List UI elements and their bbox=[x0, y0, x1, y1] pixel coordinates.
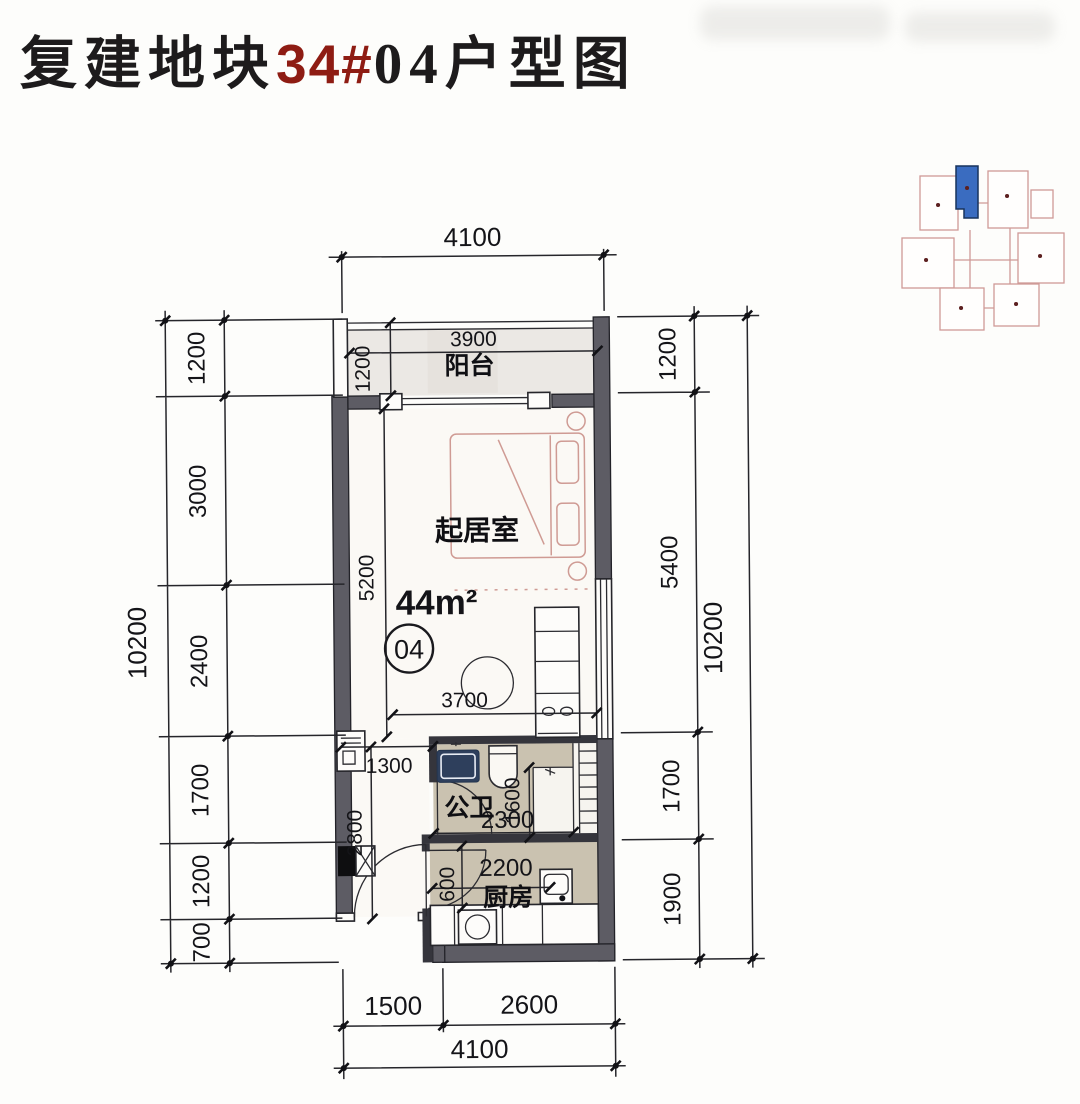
dim-bottom-1: 1500 bbox=[364, 990, 422, 1021]
dimension-left-lines bbox=[155, 309, 348, 973]
dim-left-1: 1200 bbox=[183, 332, 210, 386]
dim-left-6: 700 bbox=[188, 922, 215, 962]
dim-right-4: 1900 bbox=[659, 872, 686, 926]
unit-number-text: 04 bbox=[394, 634, 424, 664]
shower-area bbox=[533, 767, 574, 833]
balcony-wall-stub-left bbox=[348, 396, 382, 409]
living-window-right bbox=[595, 579, 612, 739]
dim-living-width: 3700 bbox=[441, 689, 488, 712]
dim-living-height: 5200 bbox=[355, 554, 378, 601]
dim-right-2: 5400 bbox=[656, 535, 683, 589]
right-wall-lower bbox=[597, 739, 615, 961]
balcony-wall-stub-right bbox=[552, 394, 594, 407]
dimension-right-lines bbox=[617, 306, 765, 969]
floor-plan-drawing: 4100 3900 1200 5200 3700 1300 2800 1600 … bbox=[0, 0, 1080, 1104]
dim-balcony-depth: 1200 bbox=[351, 346, 374, 393]
room-label-kitchen: 厨房 bbox=[483, 883, 533, 912]
dim-balcony-width: 3900 bbox=[450, 328, 497, 351]
right-wall-upper bbox=[593, 317, 611, 579]
room-label-balcony: 阳台 bbox=[444, 351, 494, 380]
dim-hall-height: 2800 bbox=[343, 810, 366, 857]
dim-bottom-2: 2600 bbox=[500, 989, 558, 1020]
dim-kitchen-width: 2200 bbox=[479, 855, 533, 882]
dim-right-total: 10200 bbox=[698, 602, 729, 675]
notch-wall-left bbox=[336, 913, 354, 921]
dim-left-3: 2400 bbox=[186, 635, 213, 689]
kitchen-sink bbox=[540, 869, 572, 903]
dimension-top-lines bbox=[329, 249, 618, 314]
dim-left-5: 1200 bbox=[188, 855, 215, 909]
dim-right-1: 1200 bbox=[654, 328, 681, 382]
dim-top-total: 4100 bbox=[443, 222, 501, 253]
room-label-living: 起居室 bbox=[435, 514, 519, 547]
area-label: 44m² bbox=[396, 583, 478, 623]
scanned-floor-plan-page: 复建地块34#04户型图 bbox=[0, 0, 1080, 1104]
counter-outline bbox=[535, 607, 580, 737]
sliding-door-track bbox=[402, 398, 528, 405]
hall-cabinet bbox=[337, 731, 365, 771]
dim-hall-width: 1300 bbox=[366, 755, 413, 778]
dim-right-3: 1700 bbox=[658, 759, 685, 813]
dim-left-4: 1700 bbox=[187, 764, 214, 818]
room-label-bath: 公卫 bbox=[444, 794, 494, 822]
dim-left-total: 10200 bbox=[122, 607, 153, 680]
kitchen-cabinet-counter bbox=[535, 607, 580, 737]
bottom-wall bbox=[443, 944, 615, 963]
sliding-door-frame-right bbox=[528, 392, 550, 408]
duct-shaft-area bbox=[573, 743, 598, 833]
dim-left-2: 3000 bbox=[184, 465, 211, 519]
dim-kitchen-door: 600 bbox=[436, 867, 459, 902]
dim-bottom-total: 4100 bbox=[451, 1034, 509, 1065]
washing-machine bbox=[458, 910, 496, 944]
